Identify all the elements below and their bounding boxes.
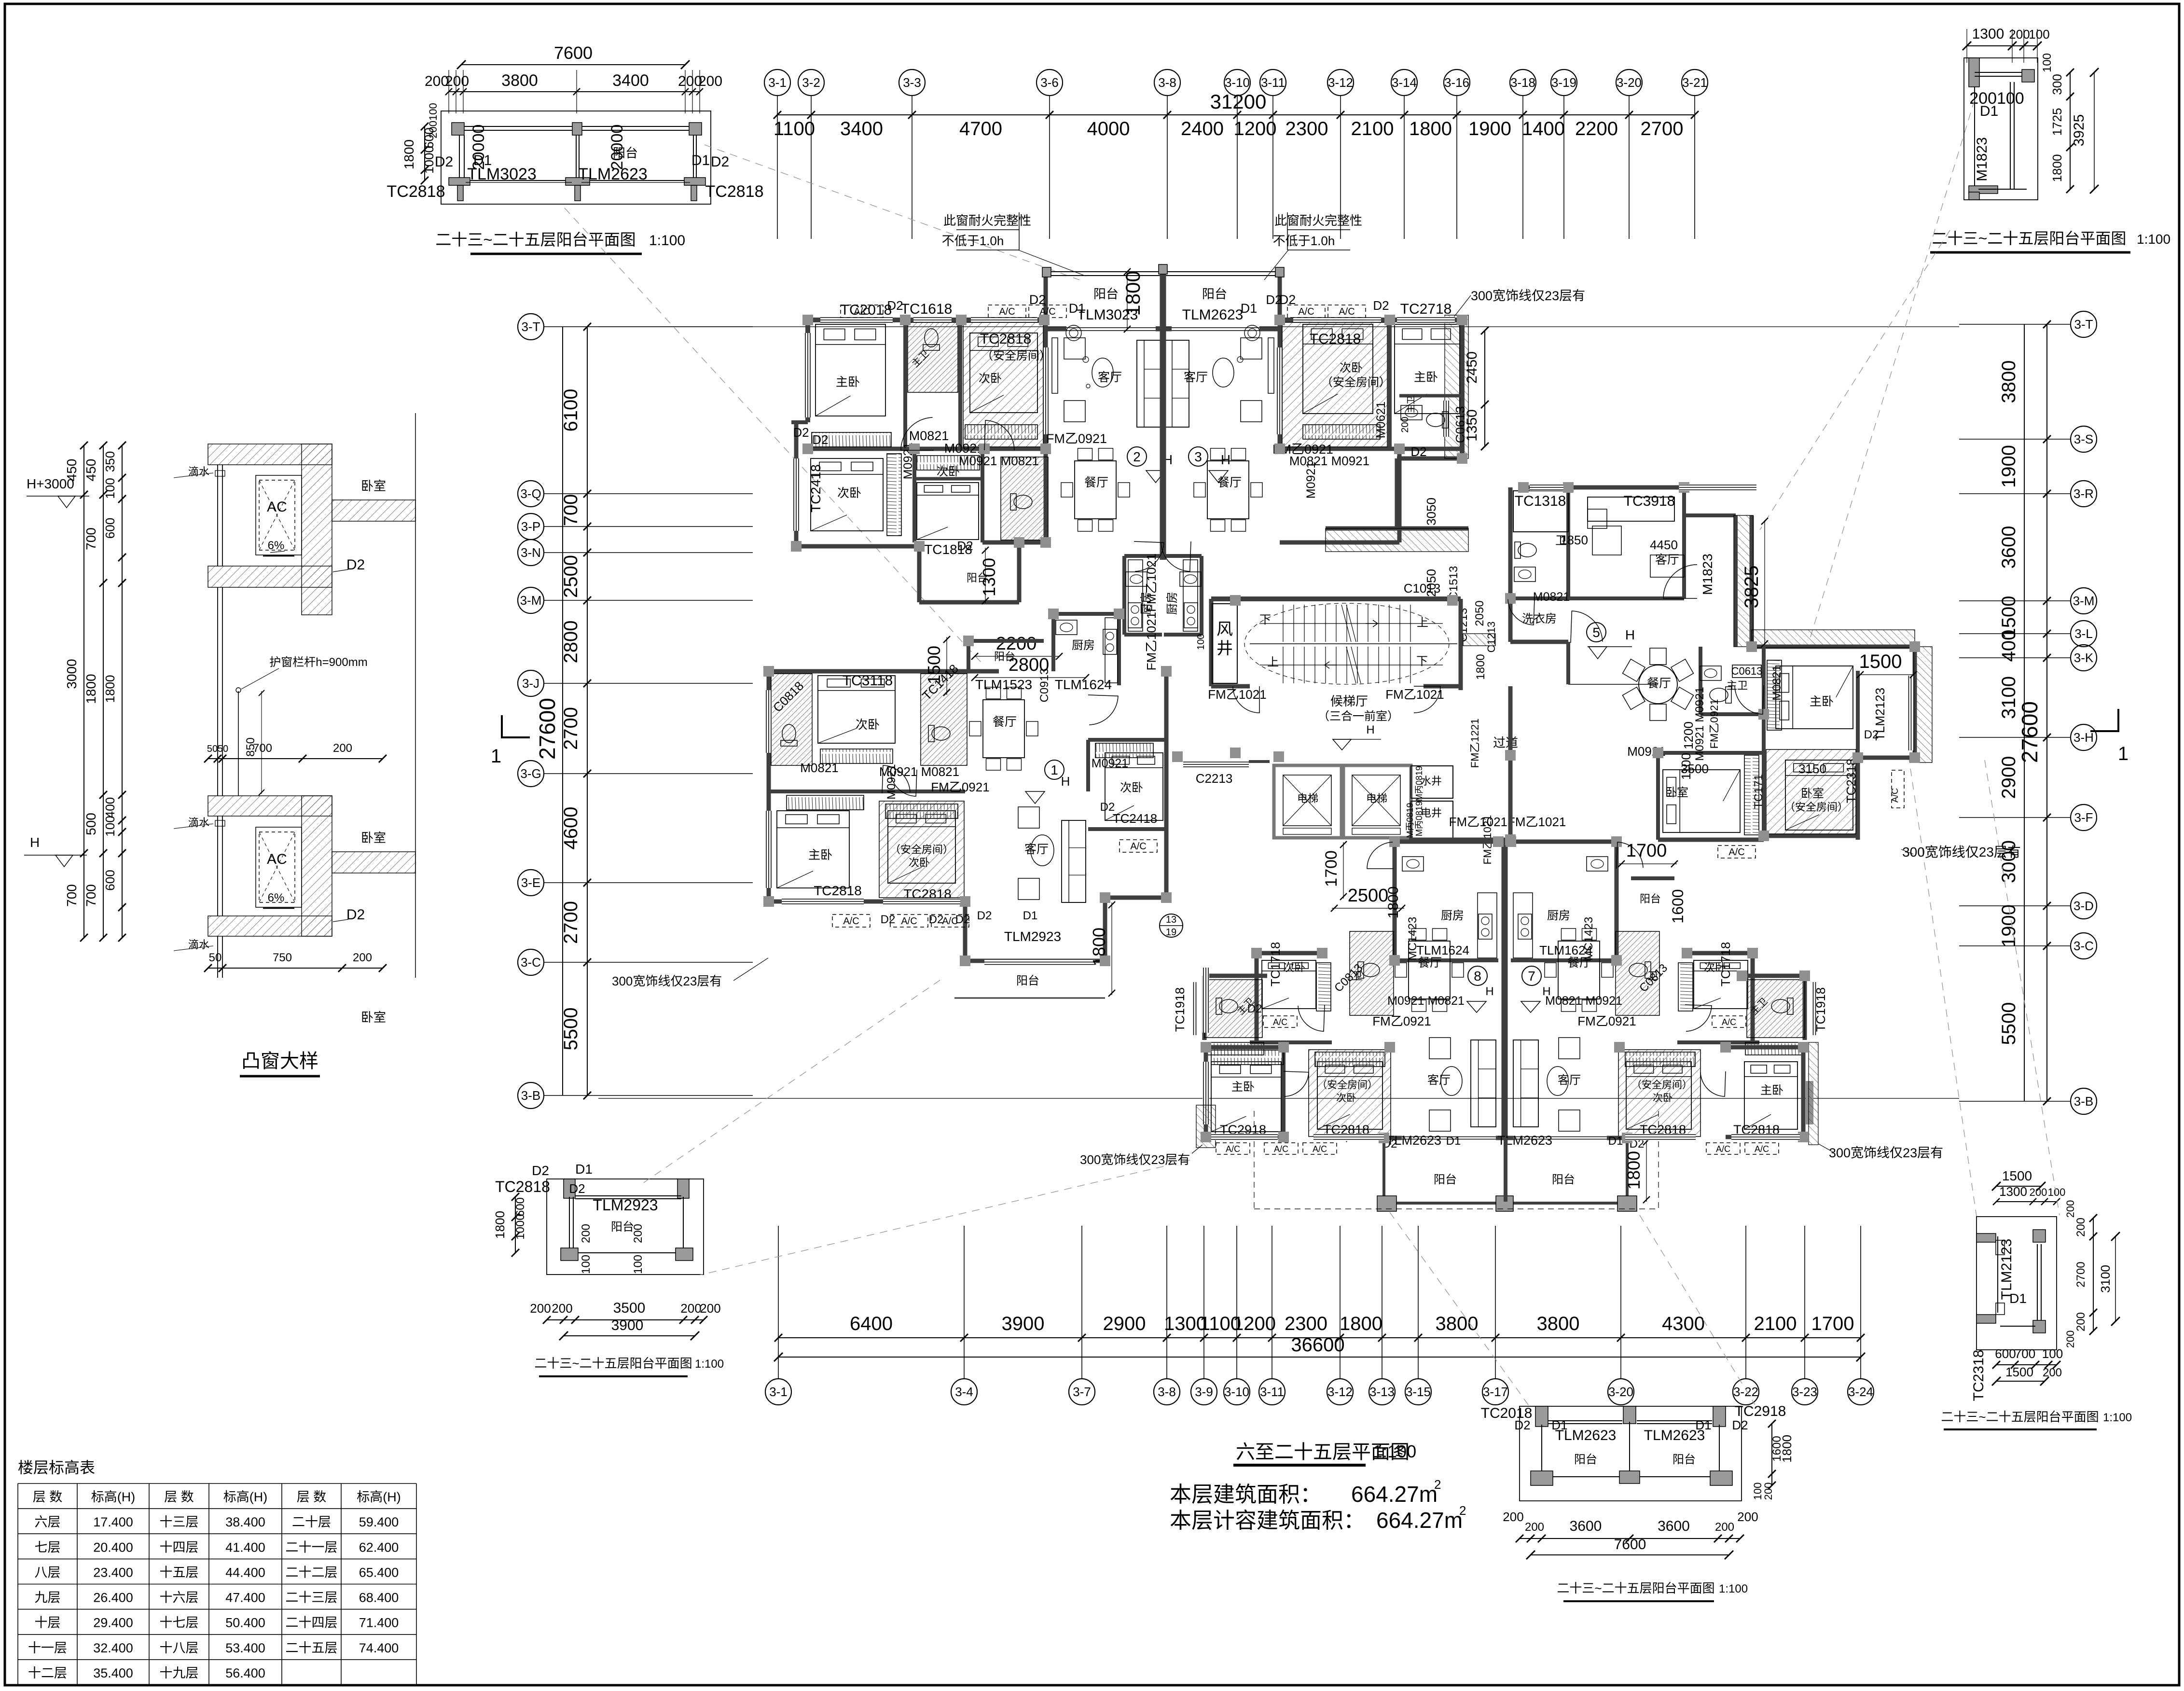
- svg-text:31200: 31200: [1210, 90, 1267, 113]
- svg-text:TC2718: TC2718: [1400, 301, 1452, 317]
- svg-text:26.400: 26.400: [93, 1591, 133, 1605]
- svg-text:标高(H): 标高(H): [357, 1490, 401, 1504]
- svg-text:3150: 3150: [1798, 762, 1826, 776]
- svg-text:1800: 1800: [1474, 654, 1487, 679]
- svg-text:七层: 七层: [35, 1540, 61, 1554]
- svg-text:TC3118: TC3118: [843, 673, 893, 689]
- svg-text:3-K: 3-K: [2074, 651, 2094, 665]
- svg-text:1800: 1800: [103, 675, 117, 703]
- svg-text:2: 2: [1434, 1477, 1441, 1492]
- svg-text:3-N: 3-N: [521, 545, 541, 560]
- svg-text:3400: 3400: [840, 118, 883, 139]
- svg-text:C1013: C1013: [1404, 581, 1441, 596]
- svg-text:2700: 2700: [1641, 118, 1684, 139]
- svg-text:M0821 M0921: M0821 M0921: [1289, 454, 1369, 468]
- svg-text:主卧: 主卧: [1810, 695, 1834, 708]
- svg-text:1:100: 1:100: [695, 1358, 724, 1371]
- svg-text:2050: 2050: [1473, 600, 1486, 626]
- svg-text:TLM1624: TLM1624: [1416, 943, 1469, 957]
- svg-text:13: 13: [1166, 915, 1176, 925]
- svg-text:主卧: 主卧: [1231, 1081, 1255, 1094]
- svg-text:二十三~二十五层阳台平面图: 二十三~二十五层阳台平面图: [1941, 1410, 2099, 1424]
- svg-text:TC2418: TC2418: [1113, 811, 1158, 826]
- svg-text:62.400: 62.400: [359, 1540, 399, 1554]
- svg-text:A/C: A/C: [1273, 1017, 1287, 1027]
- svg-text:M丙0819M丙0819: M丙0819M丙0819: [1414, 766, 1424, 836]
- svg-text:3-E: 3-E: [521, 875, 540, 890]
- svg-text:M1823: M1823: [1700, 554, 1715, 595]
- svg-text:TC2418: TC2418: [808, 464, 823, 513]
- svg-text:餐厅: 餐厅: [993, 715, 1017, 729]
- svg-text:D2: D2: [887, 298, 903, 313]
- svg-text:阳台: 阳台: [1434, 1173, 1457, 1186]
- svg-text:3-12: 3-12: [1328, 75, 1353, 90]
- svg-text:二十三层: 二十三层: [286, 1591, 338, 1605]
- svg-text:M0821: M0821: [909, 429, 949, 443]
- svg-text:200: 200: [552, 1301, 572, 1316]
- svg-text:1725: 1725: [2050, 108, 2064, 136]
- svg-text:次卧: 次卧: [1283, 961, 1305, 973]
- svg-text:M0921 M0921: M0921 M0921: [1693, 687, 1706, 761]
- svg-text:本层计容建筑面积：: 本层计容建筑面积：: [1170, 1508, 1365, 1533]
- svg-text:2200: 2200: [1575, 118, 1618, 139]
- svg-text:450: 450: [83, 459, 98, 482]
- svg-text:3-T: 3-T: [2074, 317, 2093, 332]
- svg-text:2: 2: [1133, 449, 1141, 464]
- svg-text:200: 200: [530, 1301, 551, 1316]
- svg-text:100: 100: [2041, 53, 2054, 72]
- svg-text:M0821: M0821: [1533, 590, 1570, 604]
- svg-text:D1: D1: [1551, 1418, 1567, 1432]
- svg-text:1:100: 1:100: [649, 233, 685, 249]
- svg-text:FM乙0921: FM乙0921: [1577, 1014, 1636, 1028]
- svg-text:3-8: 3-8: [1158, 1385, 1176, 1399]
- svg-text:1800: 1800: [401, 139, 416, 169]
- svg-text:FM乙1221: FM乙1221: [1469, 719, 1481, 768]
- svg-text:FM乙0921: FM乙0921: [1708, 699, 1720, 749]
- svg-text:3-11: 3-11: [1261, 75, 1285, 90]
- svg-text:1:100: 1:100: [1719, 1582, 1748, 1595]
- svg-text:4700: 4700: [959, 118, 1002, 139]
- svg-text:200: 200: [2064, 1331, 2076, 1348]
- svg-text:候梯厅: 候梯厅: [1330, 694, 1368, 708]
- svg-text:C2213: C2213: [1196, 771, 1233, 786]
- svg-text:32.400: 32.400: [93, 1641, 133, 1655]
- svg-text:客厅: 客厅: [1098, 371, 1122, 384]
- svg-text:2300: 2300: [1285, 1313, 1327, 1334]
- svg-text:36600: 36600: [1291, 1334, 1344, 1356]
- svg-text:1100: 1100: [774, 118, 815, 139]
- svg-text:200: 200: [698, 73, 722, 89]
- svg-text:2500: 2500: [1348, 886, 1389, 906]
- svg-text:C0613: C0613: [1453, 406, 1467, 444]
- svg-text:3900: 3900: [1002, 1313, 1045, 1334]
- svg-text:1300: 1300: [979, 558, 999, 596]
- svg-text:300宽饰线仅23层有: 300宽饰线仅23层有: [1080, 1152, 1190, 1167]
- svg-text:TC3918: TC3918: [1624, 493, 1675, 509]
- svg-text:3-18: 3-18: [1510, 75, 1535, 90]
- svg-text:3-16: 3-16: [1444, 75, 1469, 90]
- svg-text:滴水: 滴水: [188, 466, 209, 478]
- svg-text:阳台: 阳台: [611, 1220, 634, 1234]
- svg-text:700: 700: [64, 884, 79, 907]
- svg-text:4300: 4300: [1662, 1313, 1705, 1334]
- svg-text:二十三~二十五层阳台平面图: 二十三~二十五层阳台平面图: [435, 231, 636, 249]
- svg-text:200: 200: [1737, 1510, 1758, 1524]
- svg-text:本层建筑面积：: 本层建筑面积：: [1170, 1482, 1322, 1507]
- svg-text:二十四层: 二十四层: [286, 1616, 338, 1630]
- svg-text:A/C: A/C: [1722, 1017, 1736, 1027]
- svg-text:1800: 1800: [1121, 271, 1144, 316]
- svg-text:1:100: 1:100: [1373, 1442, 1416, 1461]
- svg-text:十五层: 十五层: [160, 1565, 199, 1580]
- svg-text:餐厅: 餐厅: [1084, 476, 1108, 489]
- svg-text:主卧: 主卧: [1760, 1084, 1783, 1097]
- svg-text:厨房: 厨房: [1166, 592, 1179, 615]
- svg-text:C0613: C0613: [1731, 665, 1763, 677]
- svg-text:3-S: 3-S: [2074, 432, 2093, 446]
- svg-text:3050: 3050: [1424, 498, 1438, 526]
- svg-text:不低于1.0h: 不低于1.0h: [1273, 234, 1335, 248]
- svg-text:FM乙1021FM乙1021: FM乙1021FM乙1021: [1449, 815, 1566, 829]
- svg-text:3-8: 3-8: [1158, 75, 1176, 90]
- svg-text:400: 400: [1998, 630, 2019, 662]
- svg-text:6%: 6%: [268, 539, 285, 552]
- svg-text:3-P: 3-P: [521, 519, 540, 534]
- svg-text:D1: D1: [1695, 1418, 1711, 1432]
- svg-text:C1513: C1513: [1447, 566, 1460, 600]
- svg-text:3600: 3600: [1658, 1518, 1690, 1534]
- svg-text:餐厅: 餐厅: [1647, 677, 1671, 690]
- svg-text:3-1: 3-1: [768, 75, 787, 90]
- svg-text:44.400: 44.400: [225, 1565, 265, 1580]
- svg-text:M1823: M1823: [1974, 137, 1990, 181]
- svg-text:D2: D2: [977, 909, 992, 922]
- svg-text:2500: 2500: [560, 555, 581, 598]
- svg-text:D1: D1: [1023, 909, 1038, 922]
- svg-text:1200: 1200: [1233, 1313, 1276, 1334]
- svg-text:300宽饰线仅23层有: 300宽饰线仅23层有: [1829, 1146, 1943, 1160]
- svg-text:AC: AC: [267, 851, 287, 867]
- svg-text:3-7: 3-7: [1073, 1385, 1091, 1399]
- svg-text:700: 700: [83, 527, 98, 550]
- svg-text:2: 2: [1459, 1503, 1466, 1518]
- svg-text:D2: D2: [569, 1181, 585, 1196]
- svg-text:6%: 6%: [268, 891, 285, 904]
- svg-text:300宽饰线仅23层有: 300宽饰线仅23层有: [1902, 845, 2021, 859]
- svg-text:1500: 1500: [1859, 651, 1902, 672]
- svg-text:次卧: 次卧: [856, 718, 880, 732]
- svg-text:35.400: 35.400: [93, 1666, 133, 1680]
- svg-text:1600: 1600: [1669, 889, 1686, 923]
- svg-text:200: 200: [1400, 416, 1410, 432]
- svg-text:二十三~二十五层阳台平面图: 二十三~二十五层阳台平面图: [534, 1356, 692, 1371]
- svg-text:200: 200: [2074, 1312, 2087, 1331]
- svg-text:次卧: 次卧: [1340, 361, 1363, 374]
- svg-text:阳台: 阳台: [1202, 287, 1227, 301]
- svg-text:FM乙0921: FM乙0921: [1372, 1014, 1431, 1028]
- svg-text:3-9: 3-9: [1195, 1385, 1213, 1399]
- svg-text:TLM2923: TLM2923: [1004, 929, 1061, 944]
- svg-text:3500: 3500: [613, 1300, 646, 1316]
- svg-text:1700: 1700: [1626, 841, 1667, 861]
- svg-text:1000: 1000: [514, 1214, 527, 1239]
- svg-text:3000: 3000: [64, 659, 79, 689]
- svg-text:M0921 M0821: M0921 M0821: [959, 454, 1039, 468]
- svg-text:71.400: 71.400: [359, 1616, 399, 1630]
- svg-text:C1213: C1213: [1485, 622, 1497, 653]
- svg-text:200: 200: [2043, 1366, 2062, 1379]
- svg-text:D1: D1: [1241, 301, 1258, 316]
- svg-text:MC1423: MC1423: [1582, 917, 1595, 961]
- svg-text:电梯: 电梯: [1366, 792, 1387, 804]
- svg-text:3-Q: 3-Q: [520, 486, 541, 501]
- svg-text:（三合一前室）: （三合一前室）: [1318, 710, 1399, 723]
- svg-text:十四层: 十四层: [160, 1540, 199, 1554]
- svg-text:200: 200: [1715, 1521, 1734, 1534]
- svg-text:100: 100: [1196, 634, 1206, 650]
- svg-text:M0921: M0921: [1304, 462, 1318, 499]
- svg-text:3100: 3100: [1998, 676, 2019, 719]
- svg-text:200: 200: [700, 1301, 720, 1316]
- svg-text:3-M: 3-M: [2073, 594, 2095, 608]
- svg-text:凸窗大样: 凸窗大样: [241, 1051, 318, 1072]
- svg-text:此窗耐火完整性: 此窗耐火完整性: [943, 213, 1031, 228]
- svg-text:3800: 3800: [1537, 1313, 1580, 1334]
- svg-text:74.400: 74.400: [359, 1641, 399, 1655]
- svg-text:卧室: 卧室: [361, 479, 386, 493]
- svg-text:D2: D2: [1373, 298, 1389, 313]
- svg-text:D1: D1: [2009, 1291, 2027, 1306]
- svg-text:二十一层: 二十一层: [286, 1540, 338, 1554]
- svg-text:100: 100: [2042, 1346, 2063, 1361]
- svg-text:次卧: 次卧: [837, 486, 861, 500]
- svg-text:主卧: 主卧: [836, 375, 860, 389]
- svg-text:阳台: 阳台: [1016, 974, 1039, 987]
- svg-text:1100: 1100: [1679, 753, 1693, 780]
- svg-text:300宽饰线仅23层有: 300宽饰线仅23层有: [612, 974, 722, 988]
- svg-text:1900: 1900: [1998, 904, 2019, 947]
- svg-text:200: 200: [1503, 1510, 1523, 1524]
- svg-text:750: 750: [273, 951, 292, 964]
- svg-text:十三层: 十三层: [160, 1515, 199, 1529]
- svg-text:阳台: 阳台: [1673, 1453, 1696, 1466]
- svg-text:200100: 200100: [427, 103, 439, 138]
- svg-text:主卫: 主卫: [1406, 396, 1416, 413]
- svg-text:100: 100: [580, 1255, 593, 1274]
- svg-text:3600: 3600: [1570, 1518, 1602, 1534]
- svg-text:3-24: 3-24: [1848, 1385, 1873, 1399]
- svg-text:1800: 1800: [1624, 1151, 1644, 1190]
- svg-text:700: 700: [83, 884, 98, 907]
- svg-text:3400: 3400: [612, 71, 649, 90]
- svg-text:滴水: 滴水: [188, 817, 209, 829]
- svg-text:D2: D2: [346, 557, 365, 573]
- svg-text:2800: 2800: [560, 621, 581, 664]
- svg-text:700: 700: [2015, 1346, 2035, 1361]
- svg-text:（安全房间）: （安全房间）: [1317, 1080, 1378, 1091]
- svg-text:十二层: 十二层: [28, 1666, 67, 1680]
- svg-text:8: 8: [1474, 969, 1481, 984]
- svg-text:D2: D2: [793, 425, 809, 440]
- svg-text:卧室: 卧室: [1665, 786, 1688, 799]
- svg-text:65.400: 65.400: [359, 1565, 399, 1580]
- svg-text:次卧: 次卧: [1336, 1093, 1356, 1104]
- svg-text:十八层: 十八层: [160, 1641, 199, 1655]
- svg-text:D2: D2: [881, 913, 896, 926]
- svg-text:300: 300: [2050, 74, 2064, 95]
- svg-text:护窗栏杆h=900mm: 护窗栏杆h=900mm: [269, 656, 367, 669]
- svg-text:十层: 十层: [35, 1616, 61, 1630]
- svg-text:3-15: 3-15: [1406, 1385, 1431, 1399]
- svg-text:2100: 2100: [1754, 1313, 1797, 1334]
- svg-text:TC2818: TC2818: [1310, 331, 1361, 347]
- svg-text:600: 600: [514, 1197, 527, 1217]
- svg-text:23.400: 23.400: [93, 1565, 133, 1580]
- svg-text:3-14: 3-14: [1392, 75, 1417, 90]
- svg-text:3-10: 3-10: [1225, 75, 1250, 90]
- svg-text:二十三~二十五层阳台平面图: 二十三~二十五层阳台平面图: [1932, 230, 2127, 247]
- svg-text:4450: 4450: [1650, 538, 1678, 552]
- svg-text:D2: D2: [1410, 444, 1426, 459]
- svg-text:1800: 1800: [493, 1211, 507, 1239]
- svg-text:H: H: [1366, 723, 1374, 736]
- svg-text:500: 500: [83, 813, 98, 835]
- svg-text:TC171: TC171: [1752, 774, 1765, 809]
- svg-text:3-20: 3-20: [1608, 1385, 1633, 1399]
- svg-text:3-21: 3-21: [1682, 75, 1707, 90]
- svg-text:TC2318: TC2318: [1971, 1350, 1987, 1401]
- svg-text:3-2: 3-2: [802, 75, 820, 90]
- svg-text:1300: 1300: [1999, 1184, 2027, 1199]
- svg-text:层 数: 层 数: [164, 1490, 194, 1504]
- svg-text:2450: 2450: [1464, 351, 1480, 384]
- svg-text:3-23: 3-23: [1792, 1385, 1817, 1399]
- svg-text:664.27m: 664.27m: [1376, 1508, 1463, 1533]
- svg-text:7: 7: [1528, 969, 1535, 984]
- svg-text:TC2818: TC2818: [387, 182, 445, 201]
- svg-text:3: 3: [1194, 449, 1202, 464]
- svg-text:次卧: 次卧: [1120, 781, 1143, 794]
- svg-text:D1: D1: [1980, 103, 1998, 119]
- svg-text:1850: 1850: [1560, 533, 1588, 547]
- svg-text:27600: 27600: [535, 698, 560, 760]
- svg-text:3925: 3925: [2071, 114, 2087, 147]
- svg-text:2700: 2700: [560, 901, 581, 944]
- svg-text:餐厅: 餐厅: [1217, 476, 1242, 489]
- svg-text:M0921: M0921: [1092, 757, 1128, 770]
- svg-text:D2: D2: [1732, 1418, 1748, 1432]
- svg-text:1000: 1000: [422, 146, 436, 174]
- svg-text:D1: D1: [691, 152, 710, 168]
- svg-text:3-T: 3-T: [522, 319, 540, 334]
- svg-text:400: 400: [103, 797, 117, 818]
- svg-text:2900: 2900: [1103, 1313, 1146, 1334]
- svg-text:A/C: A/C: [1728, 847, 1744, 858]
- svg-text:九层: 九层: [35, 1591, 61, 1605]
- svg-text:M0621: M0621: [1374, 402, 1388, 438]
- svg-text:阳台: 阳台: [1574, 1453, 1597, 1466]
- svg-text:1800: 1800: [1780, 1435, 1794, 1463]
- svg-text:3600: 3600: [1998, 526, 2019, 569]
- svg-text:2700: 2700: [560, 707, 581, 750]
- svg-text:D2: D2: [532, 1163, 549, 1178]
- svg-text:D2: D2: [1864, 728, 1879, 741]
- svg-text:200: 200: [353, 951, 372, 964]
- svg-text:TC2918: TC2918: [1735, 1403, 1786, 1419]
- svg-text:主卫: 主卫: [1727, 679, 1748, 692]
- svg-text:（安全房间）: （安全房间）: [1321, 376, 1391, 389]
- svg-text:100: 100: [103, 816, 117, 836]
- svg-text:600: 600: [103, 518, 117, 539]
- svg-text:3800: 3800: [501, 71, 538, 90]
- svg-text:3-13: 3-13: [1369, 1385, 1395, 1399]
- svg-text:7600: 7600: [1614, 1537, 1646, 1552]
- svg-text:TC2818: TC2818: [705, 182, 764, 201]
- svg-text:3-20: 3-20: [1617, 75, 1642, 90]
- svg-text:1: 1: [2118, 743, 2129, 764]
- svg-text:上: 上: [1267, 656, 1279, 669]
- svg-text:1800: 1800: [1340, 1313, 1382, 1334]
- svg-text:D2: D2: [1514, 1418, 1530, 1432]
- svg-text:C0913: C0913: [1038, 668, 1051, 703]
- svg-text:3-R: 3-R: [2073, 486, 2094, 501]
- svg-text:D2: D2: [1266, 292, 1282, 307]
- svg-text:下: 下: [1259, 613, 1271, 626]
- svg-text:2100: 2100: [1351, 118, 1394, 139]
- svg-text:600: 600: [1995, 1346, 2016, 1361]
- svg-text:3-C: 3-C: [521, 955, 541, 970]
- svg-text:A/C: A/C: [854, 306, 870, 317]
- svg-text:D1: D1: [575, 1162, 593, 1177]
- svg-text:层 数: 层 数: [33, 1490, 63, 1504]
- svg-text:TC2818: TC2818: [814, 883, 862, 898]
- svg-text:M丙0819: M丙0819: [1405, 803, 1415, 838]
- svg-text:19: 19: [1166, 927, 1176, 938]
- svg-text:17.400: 17.400: [93, 1515, 133, 1529]
- svg-text:3-1: 3-1: [769, 1385, 788, 1399]
- svg-text:5500: 5500: [560, 1008, 581, 1051]
- svg-text:楼层标高表: 楼层标高表: [18, 1459, 95, 1476]
- svg-text:3-22: 3-22: [1733, 1385, 1758, 1399]
- svg-text:H: H: [30, 835, 40, 850]
- svg-text:29.400: 29.400: [93, 1616, 133, 1630]
- svg-text:A/C: A/C: [1226, 1144, 1240, 1154]
- svg-text:A/C: A/C: [1890, 788, 1900, 803]
- svg-text:41.400: 41.400: [225, 1540, 265, 1554]
- svg-text:2700: 2700: [2074, 1261, 2087, 1287]
- svg-text:D1: D1: [1069, 301, 1086, 316]
- svg-text:1200: 1200: [1234, 118, 1277, 139]
- svg-text:H+3000: H+3000: [27, 476, 74, 491]
- svg-text:1800: 1800: [83, 674, 98, 704]
- svg-text:50.400: 50.400: [225, 1616, 265, 1630]
- svg-text:200: 200: [680, 1301, 701, 1316]
- svg-text:D2: D2: [957, 539, 973, 553]
- svg-text:20.400: 20.400: [93, 1540, 133, 1554]
- svg-text:1300: 1300: [1972, 26, 2004, 42]
- svg-text:（安全房间）: （安全房间）: [1784, 801, 1848, 813]
- svg-text:1: 1: [1051, 762, 1058, 777]
- svg-text:A/C: A/C: [1274, 1144, 1288, 1154]
- svg-text:TC2818: TC2818: [980, 331, 1032, 347]
- svg-text:3-D: 3-D: [2073, 899, 2094, 913]
- svg-text:D1: D1: [1608, 1135, 1623, 1148]
- svg-text:TC1718: TC1718: [1268, 942, 1283, 987]
- svg-text:六层: 六层: [35, 1515, 61, 1529]
- svg-text:3-G: 3-G: [520, 766, 541, 781]
- svg-text:6100: 6100: [560, 389, 581, 432]
